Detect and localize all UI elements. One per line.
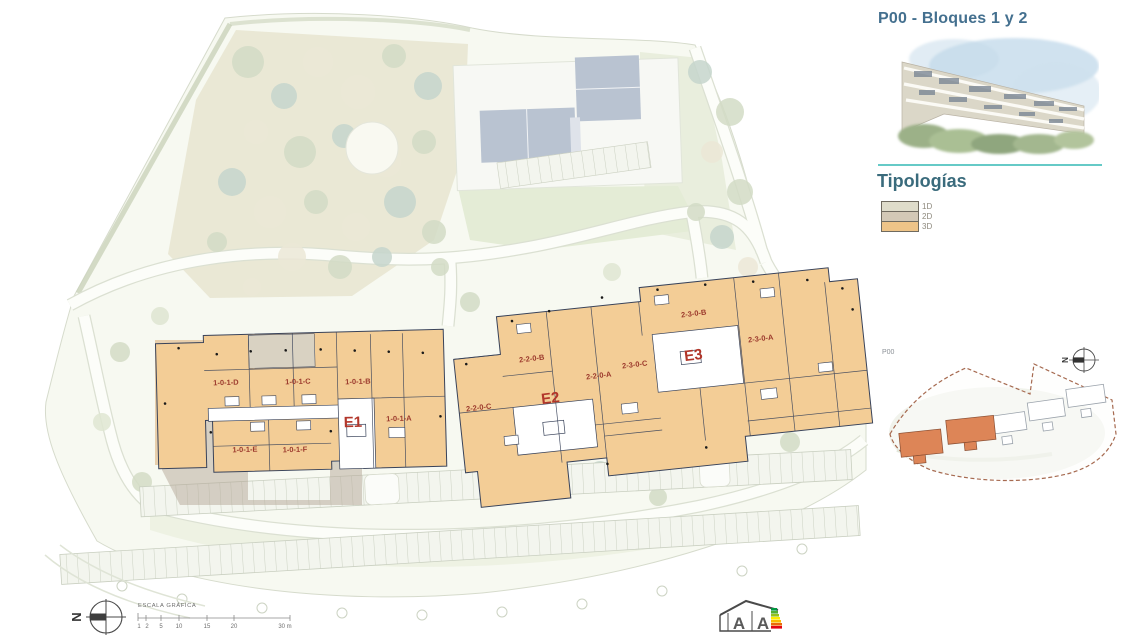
unit-label-e1-f: 1-0-1-F [283, 445, 308, 455]
building-label-e2: E2 [540, 389, 560, 408]
unit-label-e1-b: 1-0-1-B [345, 377, 371, 387]
energy-house-icon [720, 601, 778, 631]
north-label: N [69, 612, 84, 621]
scale-and-compass: N ESCALA GRÁFICA 1 2 5 10 15 20 30 m [40, 590, 360, 635]
scale-tick-15: 15 [204, 624, 211, 630]
key-map: P00 N [872, 338, 1124, 500]
scale-tick-30m: 30 m [278, 624, 291, 630]
building-label-e3: E3 [683, 346, 703, 365]
unit-label-e1-e: 1-0-1-E [232, 445, 257, 455]
typologies-legend: 1D 2D 3D [881, 202, 932, 232]
scale-tick-20: 20 [231, 624, 238, 630]
keymap-label: P00 [882, 349, 895, 356]
building-illustration [884, 34, 1099, 162]
legend-swatch-3d [881, 221, 919, 232]
unit-label-e1-d: 1-0-1-D [213, 378, 239, 388]
scale-title: ESCALA GRÁFICA [138, 602, 196, 609]
legend-label-1d: 1D [922, 202, 932, 212]
legend-item-3d: 3D [881, 222, 932, 232]
energy-letter-left: A [733, 614, 745, 633]
scale-tick-2: 2 [145, 624, 149, 630]
energy-letter-right: A [757, 614, 769, 633]
plan-sheet: 1-0-1-D 1-0-1-C 1-0-1-B 1-0-1-A 1-0-1-E … [0, 0, 1130, 635]
divider-rule [878, 164, 1102, 166]
scale-tick-1: 1 [137, 624, 141, 630]
north-compass: N [69, 599, 126, 635]
unit-label-e1-c: 1-0-1-C [285, 377, 311, 387]
building-label-e1: E1 [343, 414, 362, 431]
typologies-heading: Tipologías [877, 171, 967, 192]
page-title: P00 - Bloques 1 y 2 [878, 10, 1028, 28]
energy-certificate-logo: A A [714, 597, 786, 635]
energy-rating-stripes [771, 608, 782, 629]
site-plan: 1-0-1-D 1-0-1-C 1-0-1-B 1-0-1-A 1-0-1-E … [0, 0, 880, 635]
keymap-compass: N [1061, 347, 1099, 373]
legend-label-3d: 3D [922, 222, 932, 232]
legend-label-2d: 2D [922, 212, 932, 222]
keymap-north-label: N [1061, 357, 1070, 363]
scale-tick-10: 10 [176, 624, 183, 630]
scale-bar: ESCALA GRÁFICA 1 2 5 10 15 20 30 m [137, 602, 291, 630]
unit-label-e1-a: 1-0-1-A [386, 414, 412, 424]
scale-tick-5: 5 [159, 624, 163, 630]
playground [346, 122, 398, 174]
